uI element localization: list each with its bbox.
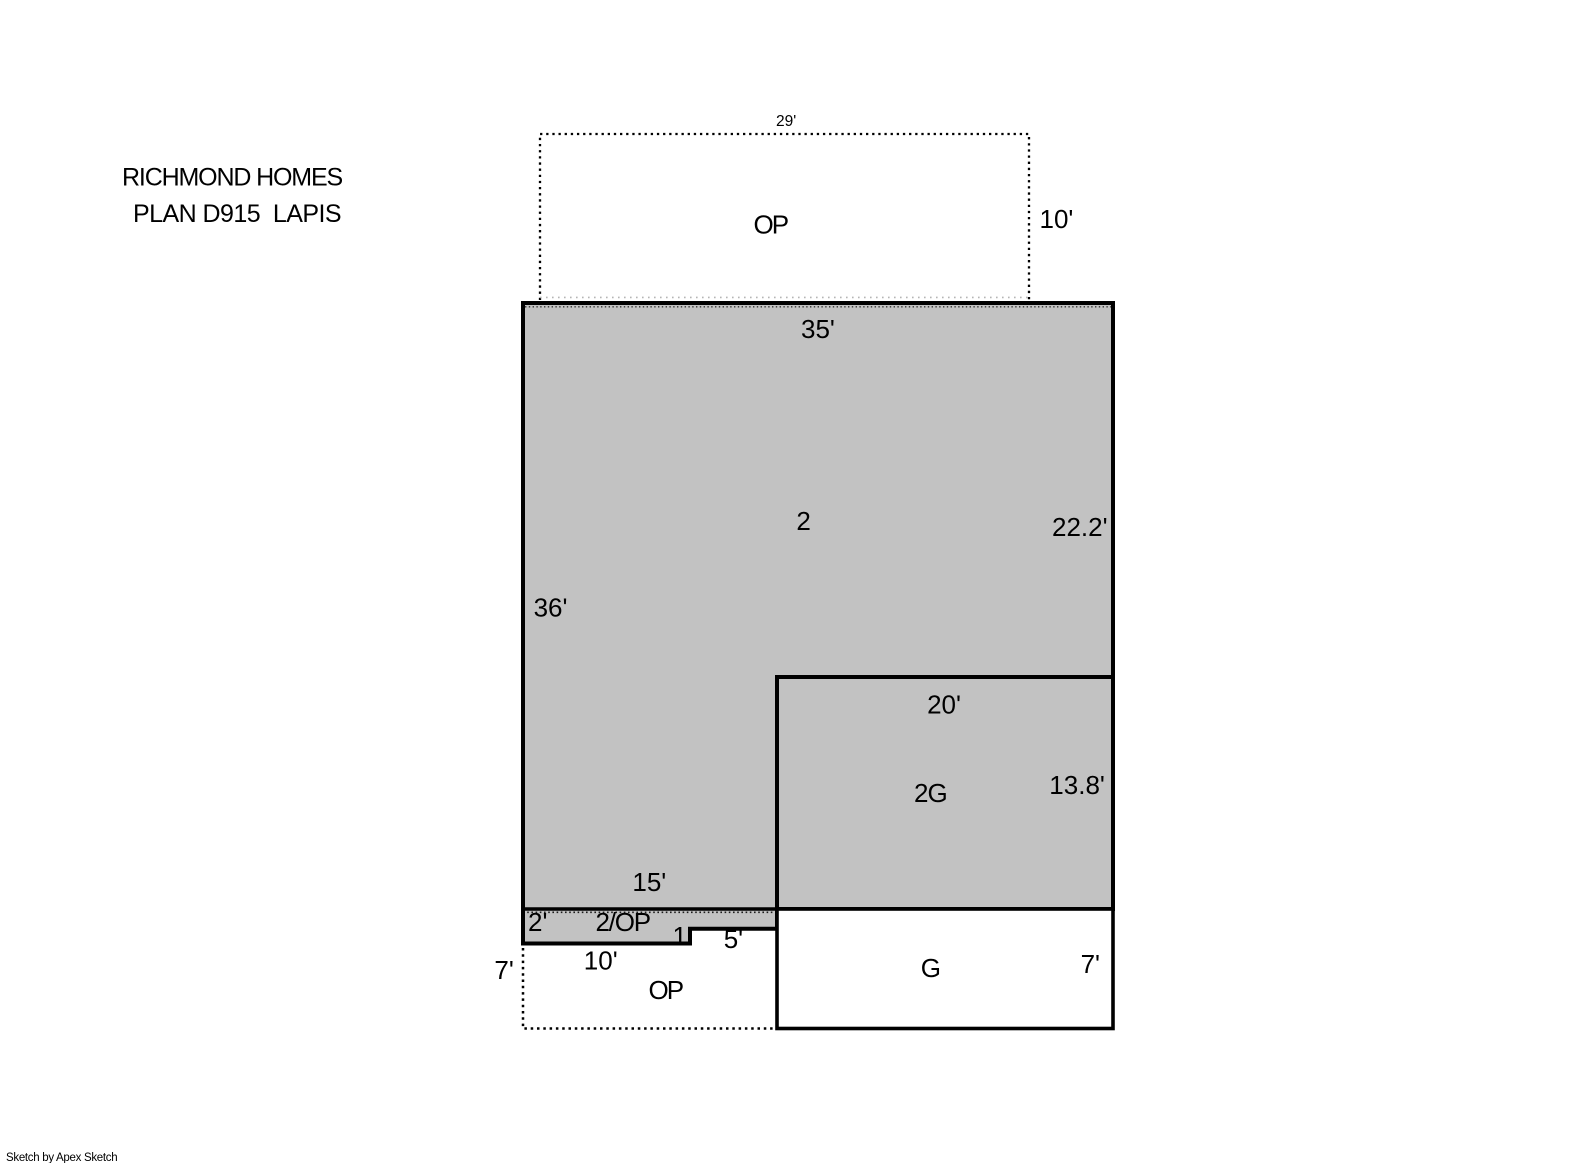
svg-text:2G: 2G [914, 778, 947, 808]
svg-text:1': 1' [673, 921, 692, 951]
svg-text:36': 36' [534, 593, 568, 623]
svg-text:2': 2' [528, 907, 547, 937]
svg-text:OP: OP [649, 975, 683, 1005]
svg-text:Sketch by Apex Sketch: Sketch by Apex Sketch [6, 1152, 117, 1163]
svg-text:10': 10' [1040, 204, 1074, 234]
svg-text:RICHMOND HOMES: RICHMOND HOMES [122, 164, 342, 192]
svg-text:35': 35' [801, 314, 835, 344]
svg-text:G: G [921, 953, 941, 983]
svg-text:20': 20' [927, 690, 961, 720]
svg-text:29': 29' [776, 113, 796, 130]
svg-text:5': 5' [724, 924, 743, 954]
svg-text:7': 7' [1081, 949, 1100, 979]
svg-text:13.8': 13.8' [1049, 770, 1105, 800]
svg-text:10': 10' [584, 946, 618, 976]
svg-text:15': 15' [632, 867, 666, 897]
svg-text:2/OP: 2/OP [596, 907, 650, 937]
svg-text:22.2': 22.2' [1052, 512, 1108, 542]
svg-text:OP: OP [754, 210, 788, 240]
svg-text:2: 2 [796, 506, 810, 536]
svg-text:PLAN D915 LAPIS: PLAN D915 LAPIS [133, 200, 341, 228]
svg-text:7': 7' [494, 955, 513, 985]
